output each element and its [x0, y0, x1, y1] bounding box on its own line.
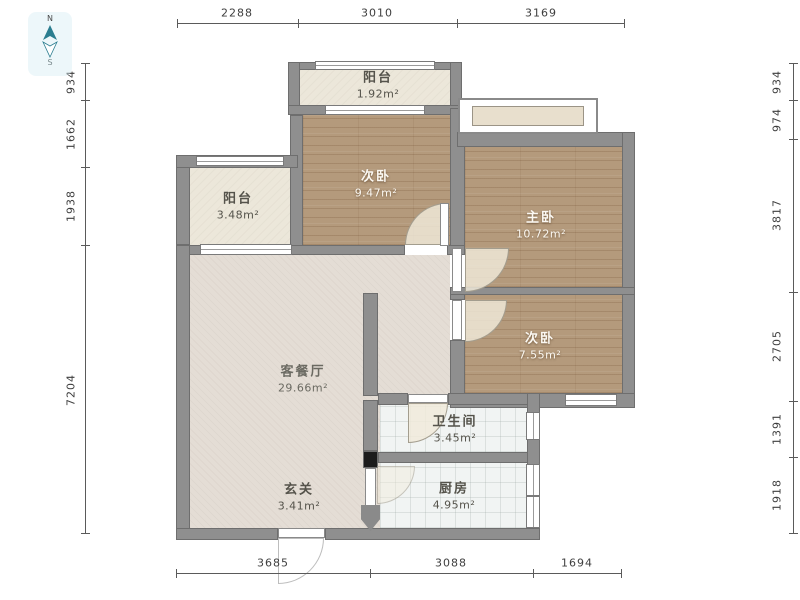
room-name: 主卧 — [516, 210, 566, 227]
dimension-tick — [81, 100, 90, 101]
dimension-tick — [789, 401, 798, 402]
window — [526, 412, 540, 440]
window — [526, 464, 540, 496]
wall — [378, 452, 528, 463]
dimension-tick — [789, 63, 798, 64]
door-leaf — [365, 468, 376, 508]
wall — [378, 393, 408, 405]
room-label-bedroom-right: 次卧 7.55m² — [519, 331, 562, 362]
room-label-kitchen: 厨房 4.95m² — [433, 481, 476, 512]
room-name: 厨房 — [433, 481, 476, 498]
dimension-value: 3088 — [435, 557, 467, 570]
room-label-master-bedroom: 主卧 10.72m² — [516, 210, 566, 241]
room-label-bathroom: 卫生间 3.45m² — [432, 414, 477, 445]
wall — [363, 293, 378, 396]
window — [315, 61, 435, 70]
room-area: 3.48m² — [217, 208, 260, 222]
room-name: 次卧 — [355, 169, 398, 186]
dimension-value: 3010 — [361, 7, 393, 20]
wall — [363, 400, 378, 451]
dimension-tick — [789, 139, 798, 140]
dimension-value: 7204 — [65, 374, 78, 406]
wall — [176, 528, 278, 540]
dimension-tick — [789, 457, 798, 458]
wall — [622, 132, 635, 408]
window — [200, 244, 292, 255]
door-leaf — [440, 203, 449, 246]
room-area: 1.92m² — [357, 87, 400, 101]
room-name: 玄关 — [278, 482, 321, 499]
dimension-tick — [298, 19, 299, 28]
door-leaf — [452, 248, 462, 292]
room-area: 3.45m² — [432, 431, 477, 445]
dimension-tick — [533, 569, 534, 578]
dimension-value: 1391 — [771, 413, 784, 445]
dimension-tick — [789, 292, 798, 293]
wall-column — [363, 451, 378, 468]
dimension-value: 2705 — [771, 330, 784, 362]
dimension-tick — [81, 533, 90, 534]
dimension-value: 974 — [771, 108, 784, 132]
wall — [176, 245, 190, 540]
wall — [176, 155, 190, 245]
dimension-value: 3817 — [771, 199, 784, 231]
wall — [325, 528, 540, 540]
room-area: 4.95m² — [433, 498, 476, 512]
door-leaf — [408, 394, 448, 403]
north-arrow-icon — [40, 24, 60, 58]
dimension-tick — [370, 569, 371, 578]
dimension-value: 1662 — [65, 118, 78, 150]
compass-north-label: N — [28, 14, 72, 24]
floor-plan: 阳台 1.92m² 次卧 9.47m² 主卧 10.72m² 阳台 3.48m²… — [0, 0, 800, 600]
wall — [457, 132, 635, 147]
dimension-value: 3169 — [525, 7, 557, 20]
wall — [448, 393, 528, 405]
dimension-value: 1918 — [771, 479, 784, 511]
wall — [290, 115, 303, 255]
room-area: 9.47m² — [355, 186, 398, 200]
entrance-door-leaf — [278, 528, 325, 538]
window — [526, 496, 540, 528]
dimension-tick — [177, 19, 178, 28]
wall — [290, 245, 405, 255]
compass: N S — [28, 12, 72, 76]
room-label-bedroom-top: 次卧 9.47m² — [355, 169, 398, 200]
dimension-tick — [81, 245, 90, 246]
room-name: 阳台 — [217, 191, 260, 208]
bay-window-sill — [472, 106, 584, 126]
dimension-line-left — [85, 63, 86, 534]
room-name: 卫生间 — [432, 414, 477, 431]
door-leaf — [452, 300, 462, 340]
room-label-balcony-top: 阳台 1.92m² — [357, 70, 400, 101]
dimension-tick — [789, 100, 798, 101]
dimension-value: 2288 — [221, 7, 253, 20]
dimension-tick — [457, 19, 458, 28]
dimension-tick — [624, 19, 625, 28]
dimension-tick — [621, 569, 622, 578]
dimension-tick — [81, 63, 90, 64]
room-name: 次卧 — [519, 331, 562, 348]
room-label-entry: 玄关 3.41m² — [278, 482, 321, 513]
room-area: 29.66m² — [278, 381, 328, 395]
dimension-value: 3685 — [257, 557, 289, 570]
window — [196, 156, 284, 166]
window — [325, 105, 425, 115]
dimension-tick — [81, 167, 90, 168]
room-area: 3.41m² — [278, 499, 321, 513]
dimension-line-top — [177, 23, 625, 24]
window — [565, 394, 617, 406]
dimension-line-right — [793, 63, 794, 534]
room-name: 阳台 — [357, 70, 400, 87]
dimension-value: 1938 — [65, 190, 78, 222]
dimension-line-bottom — [176, 573, 622, 574]
dimension-tick — [789, 533, 798, 534]
dimension-tick — [176, 569, 177, 578]
room-area: 7.55m² — [519, 348, 562, 362]
dimension-value: 934 — [771, 70, 784, 94]
dimension-value: 1694 — [561, 557, 593, 570]
compass-south-label: S — [28, 58, 72, 68]
room-area: 10.72m² — [516, 227, 566, 241]
room-label-balcony-left: 阳台 3.48m² — [217, 191, 260, 222]
room-label-living-dining: 客餐厅 29.66m² — [278, 364, 328, 395]
room-name: 客餐厅 — [278, 364, 328, 381]
